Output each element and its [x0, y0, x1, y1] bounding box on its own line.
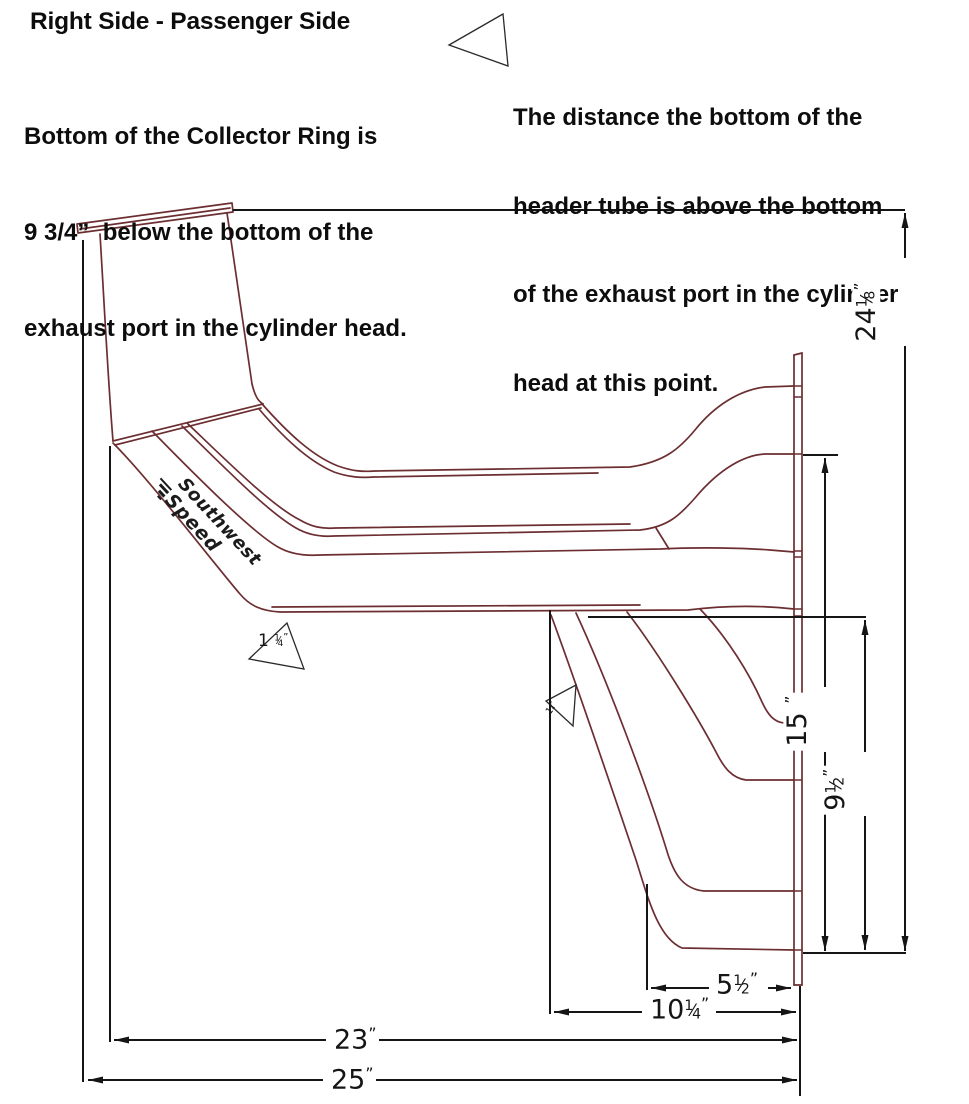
note-header-tube-distance: The distance the bottom of the header tu…: [513, 44, 898, 457]
note-collector-ring: Bottom of the Collector Ring is 9 3/4” b…: [24, 57, 407, 409]
dim-label-overall-height: 241⁄8”: [852, 280, 880, 346]
note-line: The distance the bottom of the: [513, 103, 898, 133]
note-line: 9 3/4” below the bottom of the: [24, 217, 407, 249]
flange-port-stubs: [794, 386, 802, 950]
tube4-top-edge: [576, 613, 794, 891]
tube-size-callout-big: 1 1⁄4”: [258, 633, 287, 650]
dim-label-mid-height: 91⁄2”: [821, 766, 849, 815]
dim-label-lower-offset: 101⁄4”: [646, 996, 712, 1024]
tube-joint-tick: [656, 528, 669, 549]
dim-label-collector-setback: 23”: [330, 1026, 379, 1054]
dim-label-overall-length: 25”: [327, 1066, 376, 1094]
tube3-bottom-edge: [627, 612, 794, 780]
tube3-top-edge: [700, 609, 794, 723]
note-flag-triangle: [449, 14, 508, 66]
note-line: Bottom of the Collector Ring is: [24, 121, 407, 153]
collector-ring-bottom-edge2: [115, 408, 261, 445]
header-dimension-diagram: Right Side - Passenger Side Bottom of th…: [0, 0, 969, 1104]
collector-ring-bottom-edge: [113, 404, 263, 441]
tube-bundle-outer-edge2: [272, 605, 640, 607]
tube4-bottom-edge: [551, 615, 794, 950]
note-line: of the exhaust port in the cylinder: [513, 280, 898, 310]
note-line: exhaust port in the cylinder head.: [24, 313, 407, 345]
dim-label-flange-offset: 51⁄2”: [712, 971, 761, 999]
note-line: head at this point.: [513, 369, 898, 399]
page-title: Right Side - Passenger Side: [30, 8, 350, 36]
dim-label-port2-height: 15 ”: [783, 693, 811, 751]
note-line: header tube is above the bottom: [513, 192, 898, 222]
